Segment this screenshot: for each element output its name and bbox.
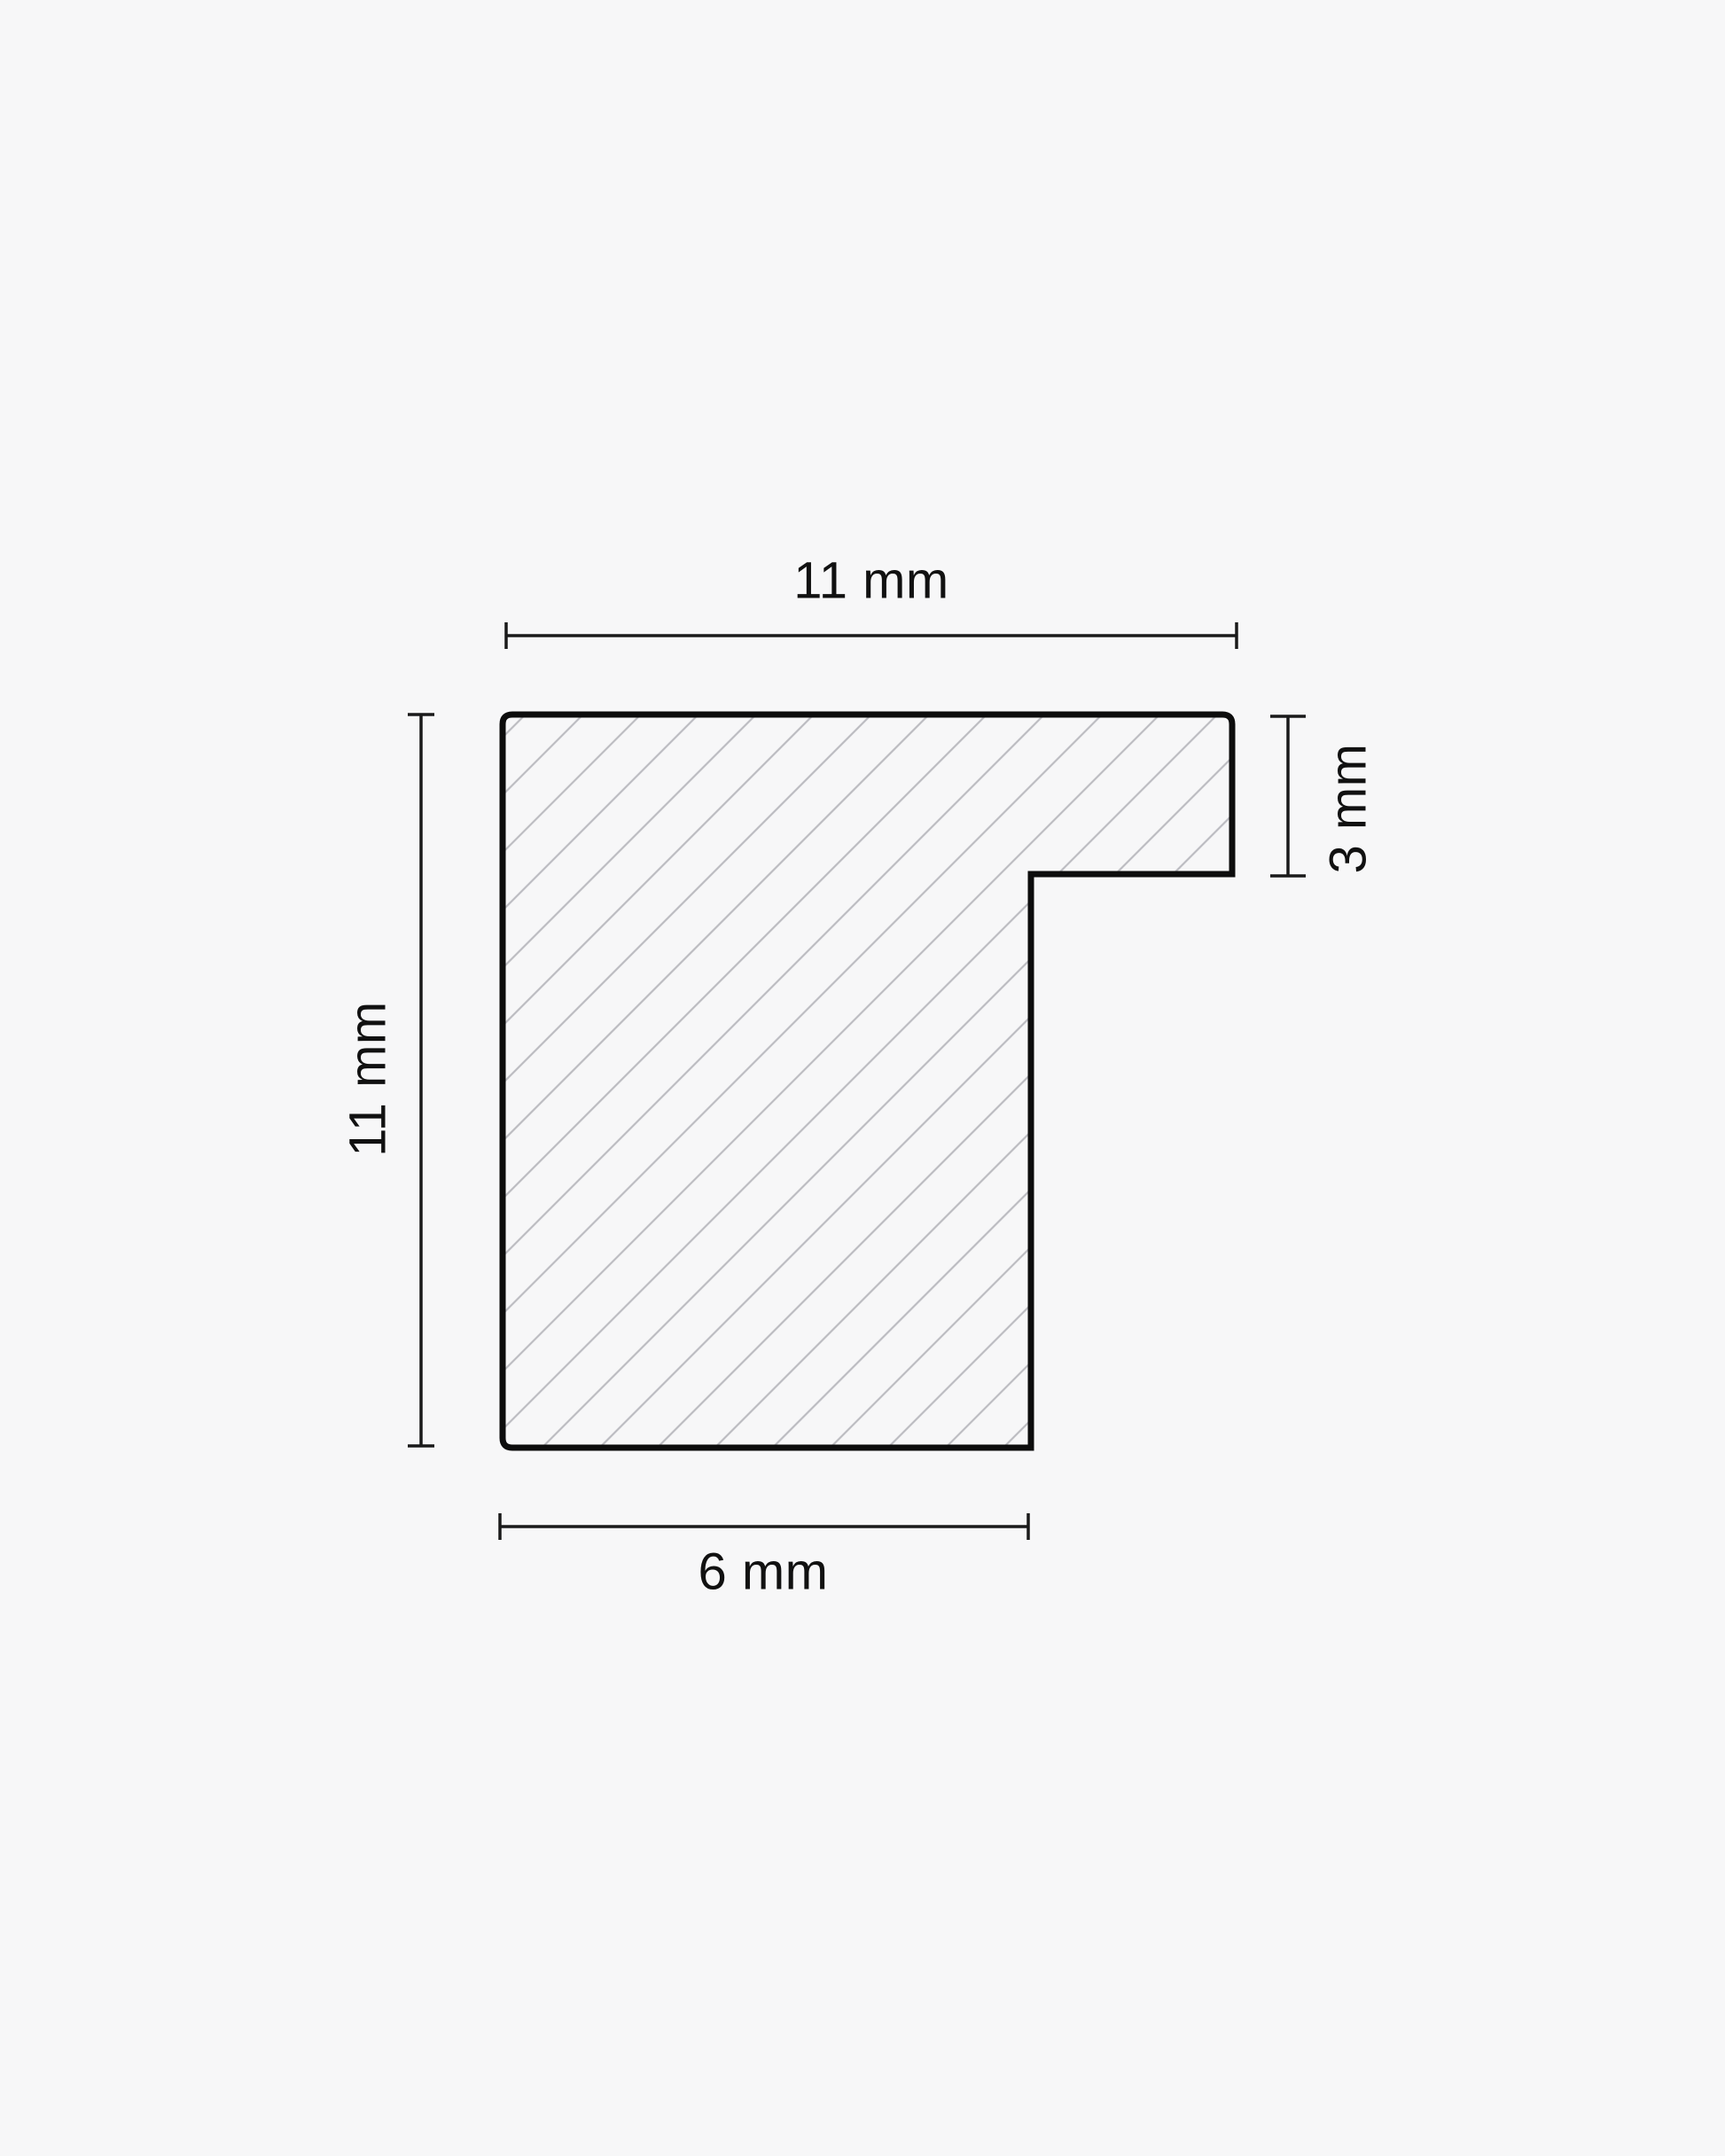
dimension-label-bottom: 6 mm [699,1543,829,1602]
diagram-canvas: 11 mm 11 mm 3 mm 6 mm [0,0,1725,2156]
dimension-line-bottom [500,1513,1028,1540]
frame-profile-shape [503,715,1232,1448]
dimension-label-top: 11 mm [793,551,948,611]
dimension-label-right: 3 mm [1319,744,1378,874]
dimension-line-right [1270,716,1306,876]
cross-section-drawing [0,0,1725,2156]
dimension-line-left [408,715,434,1446]
dimension-label-left: 11 mm [339,1001,398,1156]
dimension-line-top [506,622,1237,649]
